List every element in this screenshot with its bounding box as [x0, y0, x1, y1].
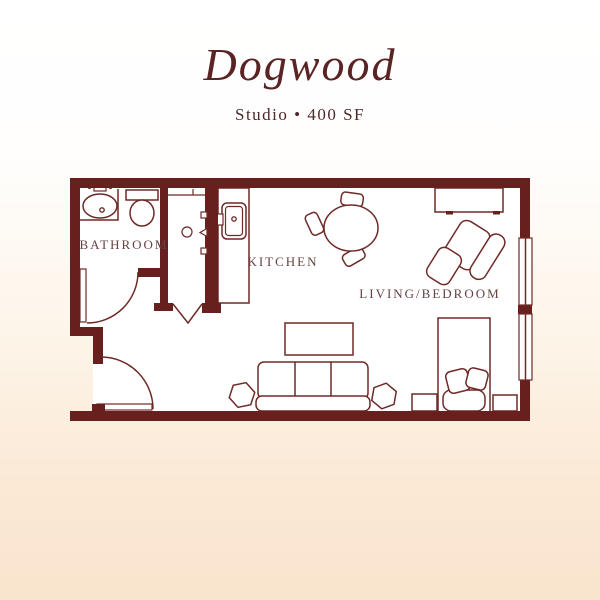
bathroom-sink-icon — [83, 183, 117, 218]
room-label-kitchen: KITCHEN — [247, 254, 318, 269]
dining-table — [324, 205, 378, 251]
bed — [438, 318, 490, 412]
room-label-bathroom: BATHROOM — [80, 237, 169, 252]
sofa — [256, 362, 370, 411]
floor-plan: BATHROOM KITCHEN LIVING/BEDROOM — [0, 0, 600, 600]
coffee-table — [285, 323, 353, 355]
pillow — [465, 367, 489, 391]
nightstand — [412, 394, 437, 411]
window — [519, 314, 532, 380]
window — [519, 238, 532, 305]
closet-hardware — [200, 212, 207, 254]
room-label-living-bedroom: LIVING/BEDROOM — [359, 286, 500, 301]
console-table — [435, 188, 503, 215]
nightstand — [493, 395, 517, 411]
